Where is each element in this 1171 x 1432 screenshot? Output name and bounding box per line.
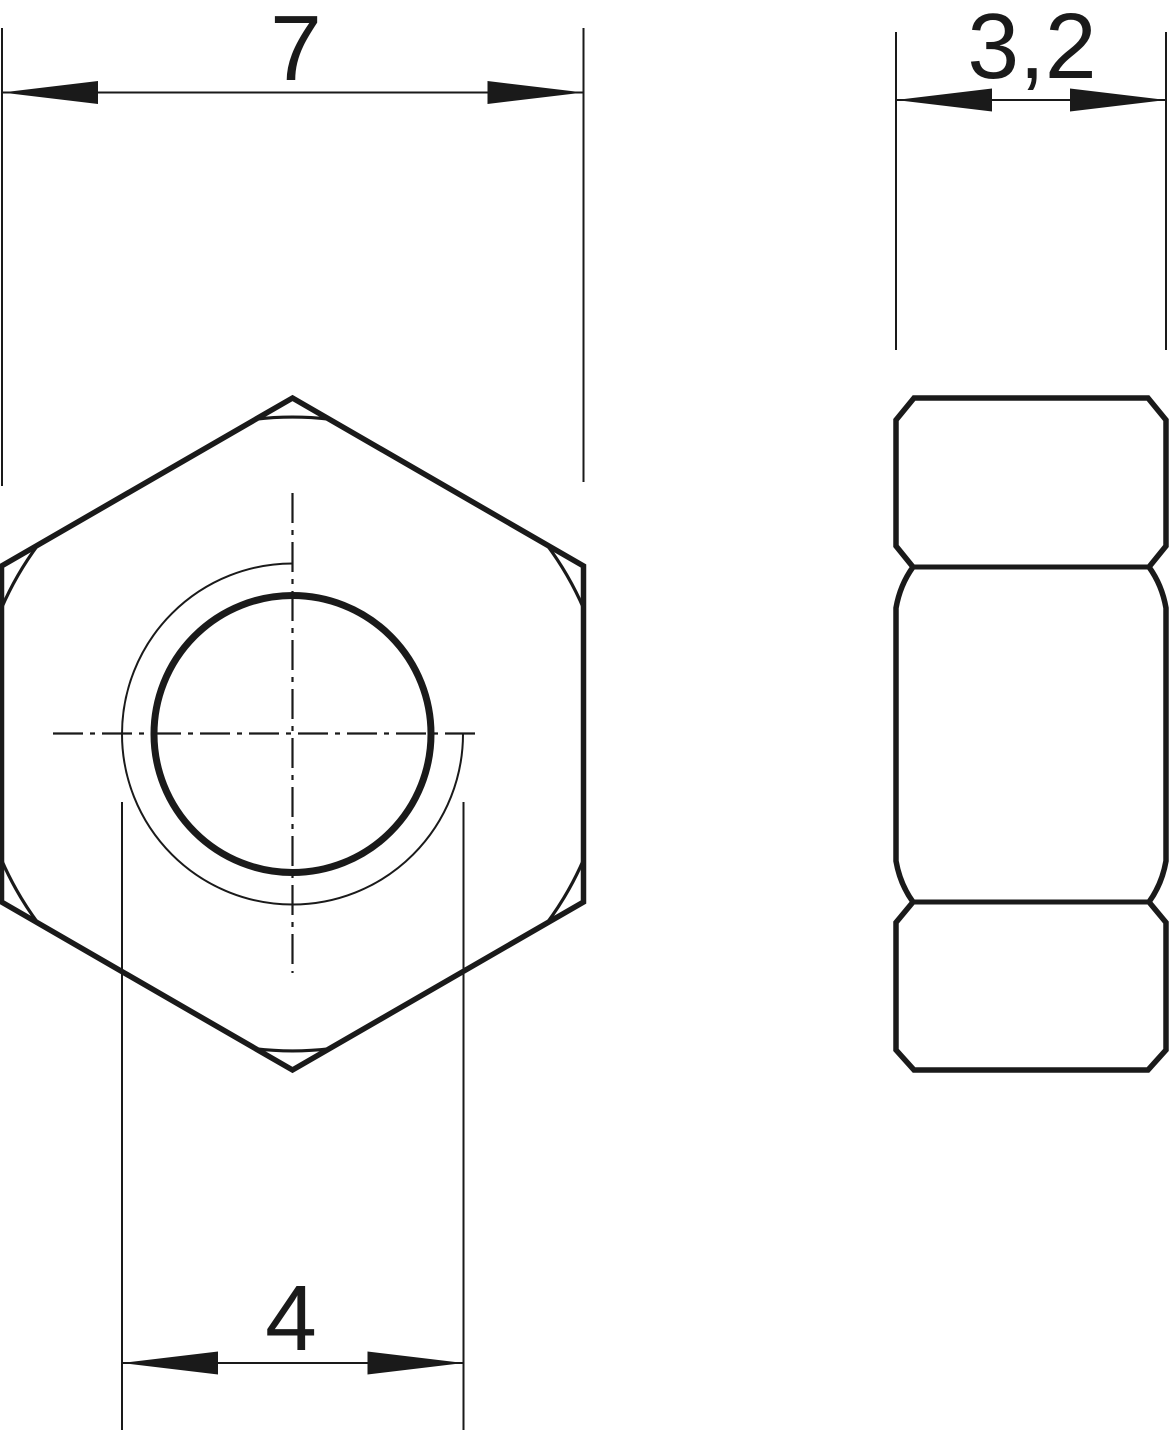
arrowhead-right xyxy=(488,81,584,104)
corner-chamfer-arc-bottom xyxy=(255,1049,330,1051)
corner-chamfer-arc-top xyxy=(255,417,330,419)
dimension-thickness: 3,2 xyxy=(896,0,1166,350)
dimension-label-thickness: 3,2 xyxy=(967,0,1096,98)
front-view xyxy=(1,398,584,1070)
dimension-across-flats: 7 xyxy=(2,0,584,486)
drawing-canvas: 7 3,2 4 xyxy=(0,0,1171,1432)
arrowhead-left xyxy=(2,81,98,104)
hex-nut-technical-drawing: 7 3,2 4 xyxy=(0,0,1171,1432)
dimension-label-across-flats: 7 xyxy=(270,0,322,100)
dimension-label-thread-diameter: 4 xyxy=(265,1266,317,1370)
side-view xyxy=(896,398,1166,1070)
side-view-outline xyxy=(896,398,1166,1070)
arrowhead-right xyxy=(368,1352,464,1375)
arrowhead-left xyxy=(122,1352,218,1375)
tap-hole-circle xyxy=(154,596,431,873)
